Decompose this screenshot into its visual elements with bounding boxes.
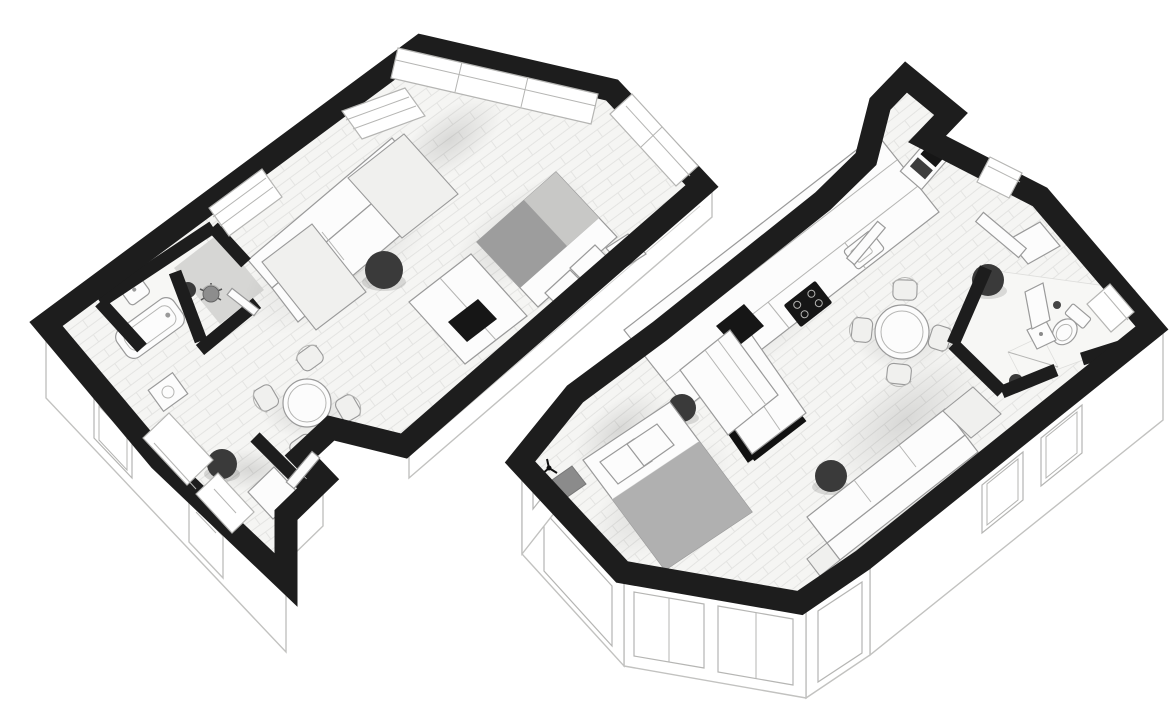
axonometric-scene — [0, 0, 1174, 710]
plant-icon — [1053, 301, 1061, 309]
facade-window — [718, 606, 793, 685]
dining-table-icon — [875, 305, 929, 359]
facade-window — [634, 592, 704, 668]
floor-plan-rendering — [0, 0, 1174, 710]
dining-chair-icon — [892, 277, 919, 300]
